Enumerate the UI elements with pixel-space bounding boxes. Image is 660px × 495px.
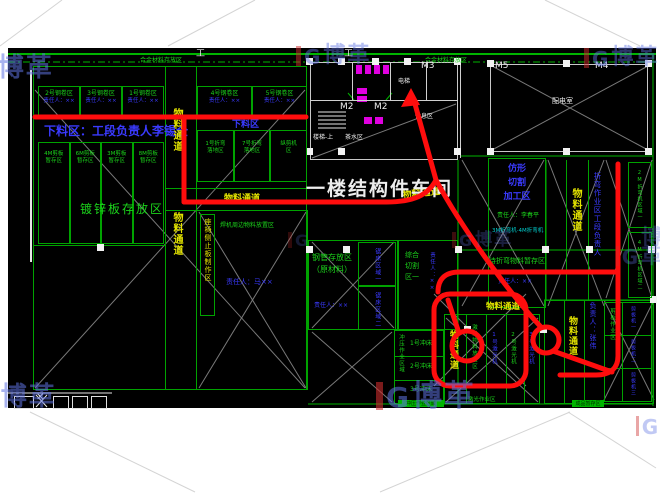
stairs-label: 楼梯-上 [313,132,333,141]
door-label-m5: M5 [495,61,509,71]
material-corridor-label: 物料通道 [447,330,460,398]
column [645,148,652,155]
material-corridor-label: 物料通道 [486,300,520,312]
cut-owner-label: 责任人：×× [428,252,436,314]
material-corridor-label: 物料通道 [169,212,184,292]
tea-area-label: 茶水区 [345,132,363,141]
shear-owner-label: 负责人：张伟 [588,302,598,380]
zone-label: 暂存区 [45,158,62,165]
punch-cell-label: 1号冲床 [410,338,432,347]
laser-wall [486,315,487,403]
door-label-m2: M2 [340,102,354,112]
bend-cell-label: 4M折弯机区域二 [637,240,644,290]
shear-cell-label: 剪板机三 [630,372,637,400]
galvanized-zone-label: 镀锌板存放区 [80,200,164,217]
column [487,148,494,155]
saw-cells: 锯床区域一 锯床区域二 [358,242,396,330]
coil-row-right: 4号钢卷区责任人：×× 5号钢卷区责任人：×× [197,86,307,116]
corridor-wall [564,300,565,404]
column [542,246,549,253]
punch-bar-label: 冲压作业区域 [398,400,444,407]
welder-material-label: 焊机周边物料放置区 [220,220,274,229]
seat-strip-label: 座椅侧止板制作区 [203,218,213,312]
legend-box [53,396,69,409]
beam-symbol: 工 [344,46,353,59]
column [563,60,570,67]
column [645,60,652,67]
boge-logo-icon: G [642,418,658,436]
laser-col-label: 3号激光机 [527,332,535,396]
welder-owner-label: 责任人：马×× [226,277,273,287]
cut-zone-label: 综合 切割 区一 [404,250,420,284]
toilet-wall [352,62,353,100]
workshop-title: 一楼结构件车间 [306,174,453,201]
column [372,58,379,65]
profiling-line: 加工区 [495,190,539,204]
column [487,60,494,67]
zone-label: 区 [286,148,292,155]
material-corridor-label: 物料通道 [224,191,260,204]
corridor-wall [584,300,585,404]
x-mark: ✕ [36,392,44,403]
column [454,148,461,155]
rest-area-label: 休息区 [415,111,433,120]
zone-label: 6M剪板 [76,151,95,158]
column [338,148,345,155]
shear-cell-label: 剪板机一 [630,306,637,334]
inner-wall [460,62,461,158]
material-corridor-label: 物料通道 [169,108,184,180]
laser-col-label: 激光物料放置区 [470,324,478,400]
zone-label: 4号钢卷区 [211,90,239,98]
door-label-m3: M3 [421,61,435,71]
column [404,58,411,65]
corridor-wall [165,66,166,390]
material-corridor-label: 物料通道 [566,316,579,378]
power-room-wall [490,64,648,152]
profiling-note-label: 3M折弯机·4M折弯机 [492,226,543,234]
punch-cell-label: 2号冲床 [410,361,432,370]
power-room-label: 配电室 [552,96,573,106]
pre-bend-label: 待折弯物料暂存区 [489,256,545,266]
pipe-storage-label: 钢管存放区 （原材料） [312,252,358,276]
zone-label: 8M剪板 [139,151,158,158]
zone-label: 5号钢卷区 [266,90,294,98]
column [563,148,570,155]
legend-box [72,396,88,409]
bend-cell: 2M折弯机区域一 [628,162,652,228]
top-wall-label: 合金材料存放区 [140,55,182,64]
punch-cell-label: 3号冲床 [410,384,432,393]
laser-wall [506,315,507,403]
factory-floor-plan: 合金材料存放区 合金材料存放区 工 工 2号钢卷区责任人：×× 3号钢卷区责任人… [0,0,660,495]
beam-symbol: 工 [196,46,205,59]
profiling-line: 仿形 [495,162,539,176]
blanking-label: 下料区 [232,117,259,130]
laser-col-label: 1号激光机 [490,332,498,396]
cut-zone-line: 综合 [405,251,419,259]
boge-logo-icon [636,416,639,436]
blanking-banner: 下料区：工段负责人李锡全 [44,122,188,139]
column [540,326,547,333]
door-label-m2: M2 [374,102,388,112]
zone-label: 1号折弯 [205,141,225,148]
owner-label: 责任人：×× [264,98,295,105]
bend-cell-label: 2M折弯机区域一 [637,170,644,220]
column [306,148,313,155]
column [338,58,345,65]
saw-cell-label: 锯床区域二 [373,292,381,327]
zone-label: 2号钢卷区 [45,90,73,98]
legend-box [14,396,34,409]
zone-label: 落地区 [244,148,261,155]
pipe-storage-line2: （原材料） [312,265,352,274]
zone-label: 4M剪板 [44,151,63,158]
bend-section-label: 折弯作业区工段负责人 [592,172,603,298]
zone-label: 落地区 [207,148,224,155]
owner-label: 责任人：×× [209,98,240,105]
cut-zone-line: 区一 [405,273,419,281]
finished-bar-label: 成品暂存区 [572,400,604,407]
zone-label: 纵剪机 [280,141,297,148]
zone-label: 暂存区 [140,158,157,165]
corridor-wall [566,160,567,300]
door-label-m4: M4 [595,61,609,71]
profiling-owner-label: 责任人：李春平 [497,210,539,219]
corridor-wall [165,188,308,189]
pre-bend-owner-label: 责任人：×× [498,276,532,285]
zone-label: 3号钢卷区 [87,90,115,98]
bend-row: 1号折弯落地区 7号折弯落地区 纵剪机区 [197,130,307,182]
corridor-wall [588,160,589,300]
pipe-storage-line1: 钢管存放区 [312,253,352,262]
column [97,244,104,251]
zone-label: 1号钢卷区 [129,90,157,98]
toilet-wall [390,62,391,100]
shear-zone-label: 剪板作业区 [608,308,616,396]
inner-wall [310,100,458,101]
cut-zone-line: 切割 [405,262,419,270]
bend-cell: 4M折弯机区域二 [628,232,652,298]
profiling-zone-label: 仿形 切割 加工区 [495,162,539,204]
zone-label: 3M剪板 [107,151,126,158]
laser-col-label: 2号激光机 [509,332,517,396]
coil-row-left: 2号钢卷区责任人：×× 3号钢卷区责任人：×× 1号钢卷区责任人：×× [38,86,164,118]
column [306,58,313,65]
saw-cell-label: 锯床区域一 [373,248,381,283]
owner-label: 责任人：×× [43,98,74,105]
shear-row-left: 4M剪板暂存区 6M剪板暂存区 3M剪板暂存区 8M剪板暂存区 [38,142,164,244]
zone-label: 7号折弯 [242,141,262,148]
legend-box [91,396,107,409]
column [455,246,462,253]
material-corridor-label: 物料通道 [568,188,583,268]
laser-bottom-label: 激光作业区 [468,395,496,403]
shear-cell-label: 剪板机二 [630,339,637,367]
profiling-line: 切割 [495,176,539,190]
shear-cells-wall [622,302,623,402]
laser-wall [524,315,525,403]
pipe-owner-label: 责任人：×× [314,300,348,309]
punch-zone-label: 冲压作业区域 [397,334,405,398]
owner-label: 责任人：×× [127,98,158,105]
owner-label: 责任人：×× [85,98,116,105]
zone-label: 暂存区 [77,158,94,165]
zone-label: 暂存区 [108,158,125,165]
elevator-label: 电梯 [398,76,410,85]
